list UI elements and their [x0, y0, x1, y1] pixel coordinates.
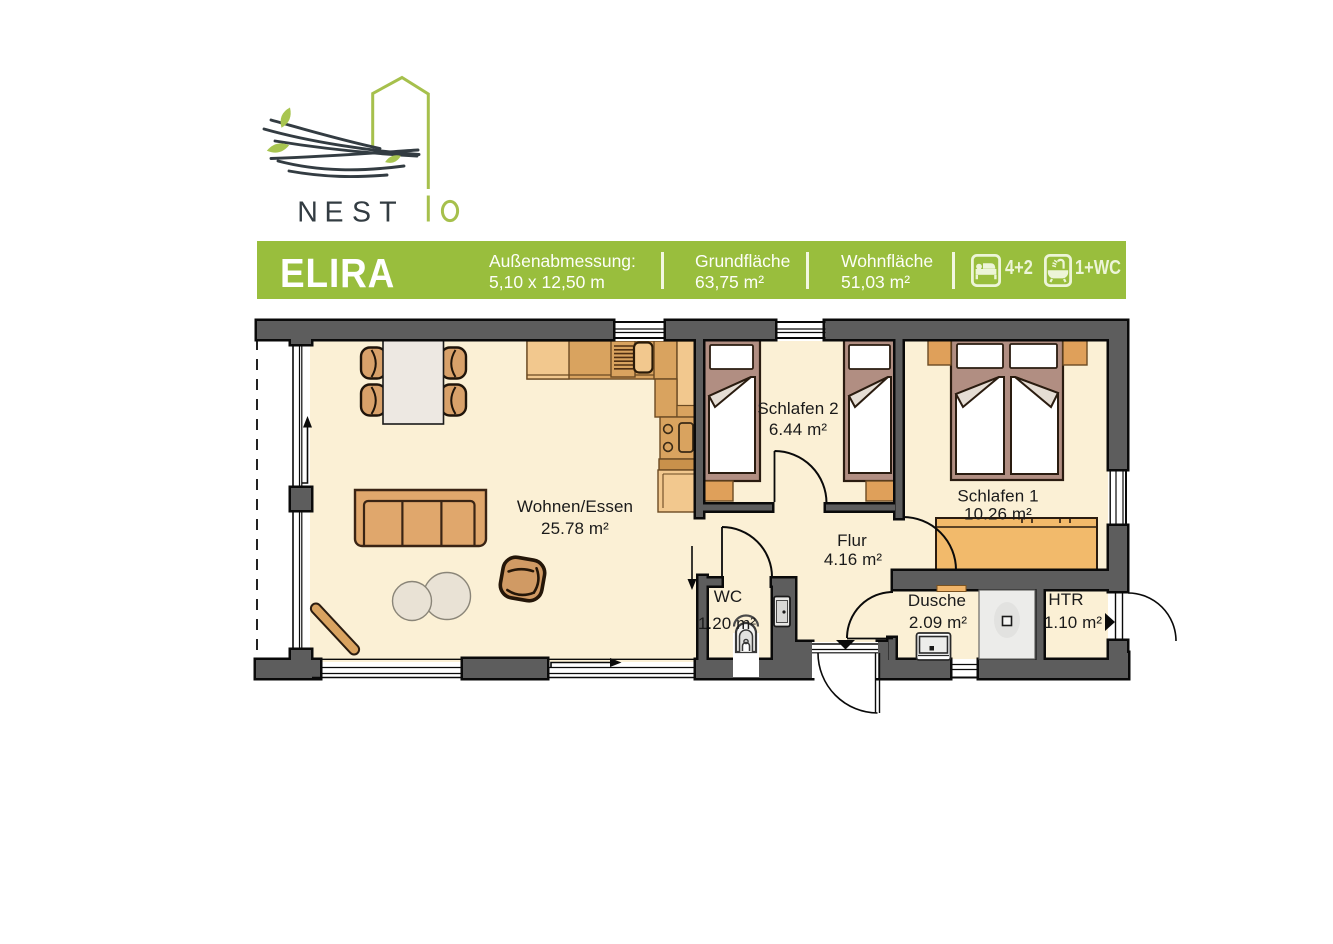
svg-text:6.44 m²: 6.44 m²: [769, 420, 828, 439]
svg-text:Wohnen/Essen: Wohnen/Essen: [517, 497, 633, 516]
svg-text:S: S: [352, 197, 371, 229]
svg-text:Schlafen 1: Schlafen 1: [957, 487, 1038, 506]
svg-text:10.26 m²: 10.26 m²: [964, 505, 1032, 524]
svg-text:Dusche: Dusche: [908, 591, 966, 610]
svg-text:4.16 m²: 4.16 m²: [824, 550, 883, 569]
svg-text:25.78 m²: 25.78 m²: [541, 519, 609, 538]
svg-text:1.20 m²: 1.20 m²: [698, 614, 757, 633]
svg-text:T: T: [379, 197, 396, 229]
svg-text:WC: WC: [714, 587, 743, 606]
svg-text:E: E: [324, 197, 343, 229]
svg-text:HTR: HTR: [1048, 590, 1083, 609]
svg-text:N: N: [297, 197, 318, 229]
svg-text:Schlafen 2: Schlafen 2: [757, 399, 838, 418]
svg-text:2.09 m²: 2.09 m²: [909, 613, 968, 632]
svg-text:1.10 m²: 1.10 m²: [1044, 613, 1103, 632]
svg-text:Flur: Flur: [837, 531, 867, 550]
